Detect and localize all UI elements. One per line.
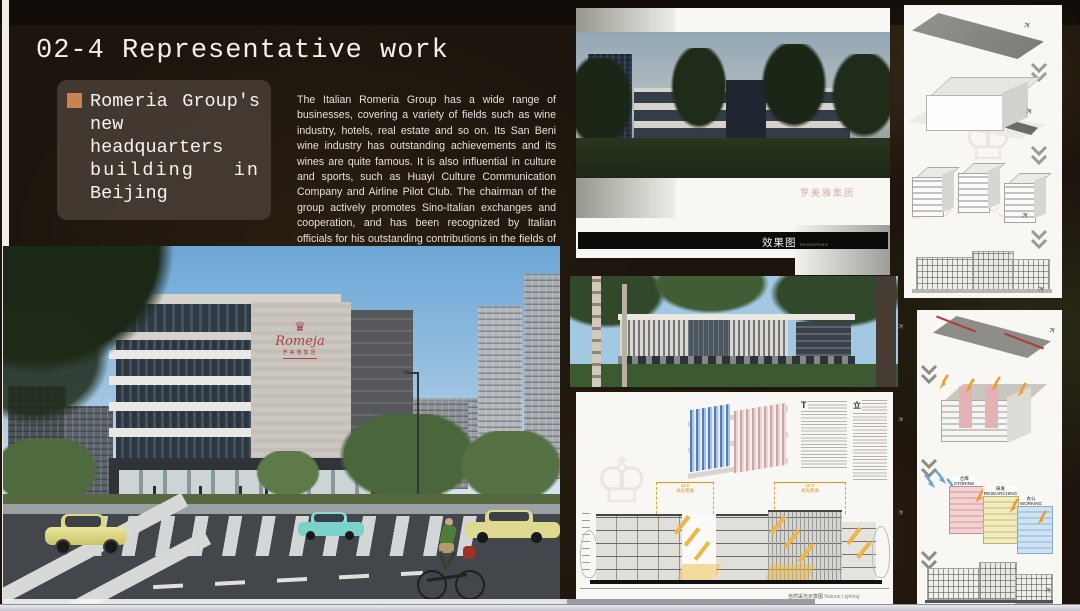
block-front [912, 177, 944, 217]
rendering-bar-label: 效果图 [762, 235, 797, 250]
sun-arrow-icon [989, 376, 1003, 392]
caption-en: Natural Lighting [824, 594, 859, 600]
court-front [941, 400, 1009, 442]
main-rendering-photo: ♛ Romeja 罗美雅集团 [3, 246, 560, 604]
dark-trunk [876, 276, 896, 387]
cyclist-leg [438, 551, 447, 569]
axon-blue-louvers [690, 404, 730, 472]
dusk-tree [828, 54, 890, 142]
elevation-segment [730, 320, 788, 356]
birch-trunk [592, 276, 601, 387]
bike-bag [463, 546, 475, 559]
car-window [65, 516, 101, 527]
daylight-pool [765, 564, 815, 580]
rendering-bar-sublabel: RENDERING [800, 242, 829, 247]
block-side [1034, 175, 1046, 218]
elevation-glass [688, 320, 730, 356]
final-mass [972, 251, 1014, 291]
presentation-slide: 02-4 Representative work Romeria Group's… [0, 0, 1080, 611]
final-base [925, 600, 1053, 603]
north-plane-icon: ✈ [896, 414, 907, 425]
pink-court-wall [985, 386, 998, 428]
facade-axon-detail [688, 398, 794, 480]
daylight-pool [677, 564, 721, 580]
block-front [958, 173, 990, 213]
building-section-drawing [580, 508, 889, 594]
dusk-rendering-photo [576, 32, 890, 178]
teal-car [298, 512, 364, 540]
diagram-panel-massing: ♔ Romeja 罗美雅集团 ✈ ✈ ✈ [904, 5, 1062, 298]
car-wheel [306, 531, 315, 540]
birch-trunk [622, 284, 627, 387]
program-stage-functions: 仓库STORING 研发RESEARCHING 办公WORKING [923, 470, 1057, 550]
lawn [570, 364, 898, 387]
body-text-column-zh: 立 [853, 400, 887, 480]
sun-arrow-icon [963, 378, 977, 394]
canopy [648, 276, 773, 316]
car-wheel [531, 532, 542, 543]
dim-label: 16.0 采光距离 [656, 483, 714, 493]
topic-text: Romeria Group's new headquarters buildin… [90, 90, 260, 205]
section-block [716, 514, 768, 582]
block-side [942, 169, 954, 212]
diagram-panel-program: ✈ 仓库STORING [917, 310, 1062, 608]
car-wheel [103, 539, 119, 555]
function-label-storing: 仓库STORING [953, 476, 975, 486]
north-plane-icon: ✈ [896, 507, 907, 518]
topic-line: Beijing [90, 182, 260, 205]
dusk-tree [668, 48, 730, 133]
final-mass [916, 257, 974, 291]
north-plane-icon: ✈ [1047, 325, 1058, 337]
massing-stage-final [908, 249, 1056, 295]
dusk-lawn [576, 138, 890, 178]
portfolio-page-section: ♔ T 立 16.0 采光距离 18.0 [576, 392, 893, 605]
bike-wheel [417, 570, 447, 600]
cyclist [411, 518, 489, 602]
topic-line: building in [90, 159, 260, 182]
tree-mass [253, 451, 323, 499]
logo-script: Romeja [261, 334, 339, 349]
logo-subtext: 罗美雅集团 [261, 349, 339, 357]
cyclist-leg [446, 551, 456, 567]
gray-gradient-block [576, 8, 676, 34]
chevron-down-icon [1030, 229, 1048, 251]
box-front-face [926, 95, 1004, 131]
section-tree [872, 526, 890, 578]
gray-gradient-block [576, 176, 676, 218]
car-wheel [55, 539, 71, 555]
white-band [109, 402, 259, 411]
north-plane-icon: ✈ [1022, 20, 1033, 32]
sun-arrow-icon [937, 374, 951, 390]
building-logo: ♛ Romeja 罗美雅集团 [261, 320, 339, 384]
drop-cap-en: T [801, 400, 808, 410]
window-bottom-edge [0, 604, 1080, 611]
dim-label: 18.0 采光距离 [774, 483, 846, 493]
bullet-square-icon [67, 93, 82, 108]
description-paragraph: The Italian Romeria Group has a wide ran… [297, 93, 556, 262]
yellow-car-left [45, 514, 127, 552]
ground-line [590, 580, 882, 584]
function-label-working: 办公WORKING [1019, 496, 1043, 506]
sun-arrow-icon [1035, 510, 1049, 526]
car-window [489, 512, 529, 521]
page-title: 02-4 Representative work [36, 36, 449, 66]
crown-watermark: ♔ [594, 444, 650, 517]
massing-stage-volume [906, 73, 1058, 143]
foreground-foliage [3, 306, 123, 436]
topic-box: Romeria Group's new headquarters buildin… [57, 80, 271, 220]
program-stage-courtyards [935, 374, 1051, 454]
logo-crown-icon: ♛ [261, 320, 339, 334]
car-window [314, 514, 344, 522]
street-lamp-head [403, 370, 409, 373]
body-text-column-en: T [801, 400, 847, 468]
white-band [109, 428, 259, 437]
final-mass [927, 568, 981, 600]
elevation-dark-segment [796, 322, 851, 356]
car-wheel [345, 531, 354, 540]
drop-cap-zh: 立 [853, 400, 862, 411]
function-label-researching: 研发RESEARCHING [983, 486, 1018, 496]
topic-line: new headquarters [90, 113, 260, 159]
axon-pink-louvers [734, 403, 786, 473]
massing-stage-split-blocks [910, 163, 1056, 225]
section-block [596, 514, 682, 582]
dusk-tree [758, 44, 830, 132]
page1-watermark-text: 罗美雅集团 [800, 186, 855, 199]
rendering-title-bar: 效果图 RENDERING [578, 232, 888, 249]
sun-arrow-icon [1015, 382, 1029, 398]
ground-thin-line [580, 588, 889, 589]
final-base [912, 289, 1052, 293]
block-side [988, 165, 1000, 208]
final-mass [979, 562, 1017, 600]
logo-rule [283, 358, 317, 359]
topic-line: Romeria Group's [90, 90, 260, 113]
day-rendering-photo [570, 276, 898, 387]
street-lamp [417, 374, 419, 508]
program-stage-final-building [925, 562, 1055, 606]
elevation-segment [620, 320, 688, 356]
